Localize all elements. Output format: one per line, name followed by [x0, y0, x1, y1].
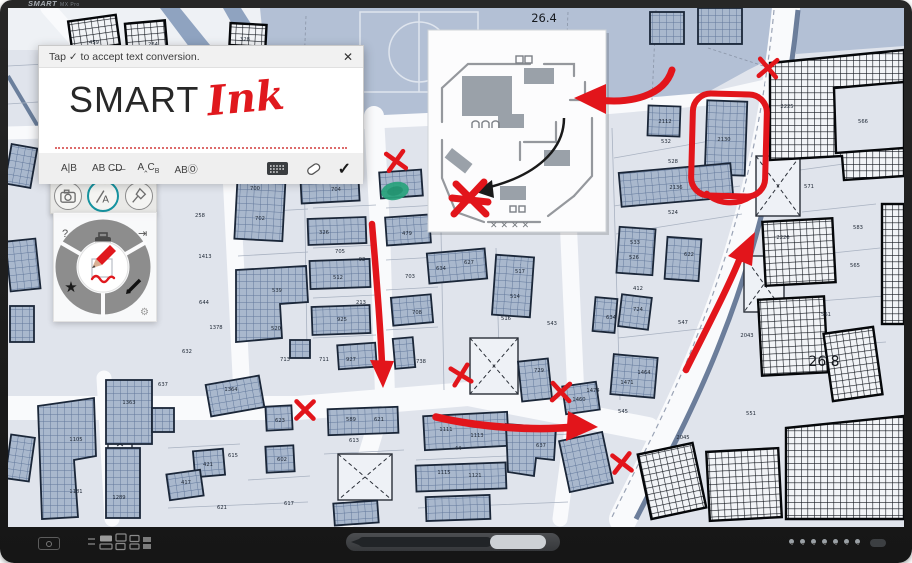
parcel-label: 92	[359, 257, 366, 263]
parcel-label: 547	[678, 320, 688, 326]
parcel-label: 724	[633, 307, 644, 313]
parcel-label: 561	[821, 312, 831, 318]
keyboard-icon	[267, 162, 289, 176]
parcel-label: 1113	[470, 433, 483, 439]
spotlight-icon	[130, 187, 148, 205]
parcel-label: 637	[536, 443, 546, 449]
parcel-label: 326	[319, 230, 329, 236]
parcel-label: 1105	[69, 437, 82, 443]
stylus[interactable]	[358, 537, 492, 547]
parcel-label: 526	[629, 255, 639, 261]
dialog-header-text: Tap ✓ to accept text conversion.	[49, 51, 200, 63]
camera-icon	[59, 188, 77, 204]
gesture-insert-word-button[interactable]: A‸CB	[138, 162, 160, 175]
parcel-label: 613	[349, 438, 359, 444]
parcel-label: 532	[661, 139, 671, 145]
parcel-label: 2112	[658, 119, 671, 125]
parcel-label: 703	[405, 274, 415, 280]
dialog-footer: A|B AB C̶D̶ A‸CB ABⓄ ✓	[39, 153, 363, 184]
parcel-label: 524	[668, 210, 679, 216]
keyboard-button[interactable]	[267, 162, 289, 176]
parcel-label: 622	[684, 252, 694, 258]
front-control-buttons[interactable]	[88, 532, 152, 557]
parcel-label: 738	[416, 359, 426, 365]
conversion-preview: SMART Ink	[39, 68, 363, 153]
parcel-label: 1363	[122, 400, 135, 406]
parcel-label: 623	[275, 418, 285, 424]
accept-check-button[interactable]: ✓	[338, 159, 351, 179]
parcel-label: 713	[280, 357, 290, 363]
parcel-label: 1111	[439, 427, 452, 433]
parcel-label: 729	[534, 368, 544, 374]
gesture-sub-label: B	[155, 168, 160, 175]
close-icon[interactable]: ✕	[343, 50, 353, 64]
parcel-label: 514	[510, 294, 521, 300]
parcel-label: 700	[250, 186, 260, 192]
parcel-label: 545	[618, 409, 628, 415]
parcel-label: 1289	[112, 495, 125, 501]
handwritten-ink-text: Ink	[205, 71, 286, 126]
parcel-label: 533	[630, 240, 640, 246]
smart-ink-conversion-dialog: Tap ✓ to accept text conversion. ✕ SMART…	[38, 45, 364, 180]
parcel-label: 551	[746, 411, 756, 417]
parcel-label: 634	[436, 266, 447, 272]
parcel-label: 711	[319, 357, 329, 363]
power-button[interactable]	[38, 537, 60, 550]
parcel-label: 1121	[468, 473, 481, 479]
settings-gear-button[interactable]: ⚙	[140, 307, 149, 318]
parcel-label: 520	[271, 326, 281, 332]
parcel-label: 2136	[669, 185, 682, 191]
inset-floor-plan-card: ✕✕✕✕	[428, 30, 609, 235]
parcel-label: 1460	[572, 397, 585, 403]
parcel-label: 328	[240, 37, 250, 43]
parcel-label: 1181	[69, 489, 82, 495]
eraser-button[interactable]	[304, 160, 323, 177]
parcel-label: 632	[182, 349, 192, 355]
parcel-label: 1364	[224, 387, 238, 393]
svg-text:A: A	[103, 194, 110, 205]
parcel-label: 702	[255, 216, 265, 222]
favorites-star-segment[interactable]: ★	[64, 279, 77, 296]
parcel-label: 583	[853, 225, 863, 231]
parcel-label: 539	[272, 288, 282, 294]
elevation-label: 26.8	[808, 354, 839, 370]
parcel-label: 421	[203, 462, 213, 468]
parcel-label: 258	[195, 213, 205, 219]
touchscreen[interactable]: 4592643282581413644137863270070253952071…	[8, 8, 904, 527]
parcel-label: 708	[412, 310, 422, 316]
inset-xxxx-marks: ✕✕✕✕	[490, 220, 532, 230]
brand-text: SMART	[28, 0, 57, 8]
parcel-label: 617	[284, 501, 294, 507]
screen-capture-button[interactable]	[54, 182, 82, 210]
bottom-bezel	[8, 527, 904, 563]
parcel-label: 927	[346, 357, 356, 363]
gesture-insert-space-button[interactable]: A|B	[61, 163, 77, 174]
elevation-label: 26.4	[531, 11, 557, 25]
parcel-label: 615	[228, 453, 238, 459]
parcel-label: 1378	[209, 325, 222, 331]
spotlight-button[interactable]	[125, 182, 153, 210]
parcel-label: 412	[633, 286, 643, 292]
convert-ink-to-text-button[interactable]: A	[87, 180, 119, 212]
parcel-label: 479	[402, 231, 412, 237]
parcel-label: 44	[455, 446, 462, 452]
bezel-side-button[interactable]	[870, 539, 886, 547]
active-pen-tool[interactable]	[78, 242, 128, 292]
parcel-label: 543	[547, 321, 557, 327]
conversion-underline	[55, 147, 347, 149]
parcel-label: 566	[858, 119, 868, 125]
parcel-label: 627	[464, 260, 474, 266]
parcel-label: 1115	[437, 470, 450, 476]
parcel-label: 1464	[637, 370, 651, 376]
converted-text: SMART	[69, 79, 199, 121]
smart-board-display: SMARTMX Pro	[0, 0, 912, 563]
smart-logo: SMARTMX Pro	[28, 0, 80, 8]
parcel-label: 1471	[620, 380, 633, 386]
parcel-label: 213	[356, 300, 366, 306]
parcel-label: 634	[606, 315, 617, 321]
pen-tray	[346, 533, 560, 551]
parcel-label: 704	[331, 187, 342, 193]
parcel-label: 528	[668, 159, 678, 165]
power-icon	[46, 541, 52, 547]
parcel-label: 637	[158, 382, 168, 388]
parcel-label: 1413	[198, 254, 211, 260]
text-conversion-icon: A	[94, 187, 112, 205]
parcel-label: 2130	[717, 137, 730, 143]
parcel-label: 644	[199, 300, 210, 306]
parcel-label: 417	[181, 480, 191, 486]
radial-pen-widget: ? ⇥ ⚙ ★	[53, 212, 157, 322]
gesture-select-button[interactable]: ABⓄ	[174, 161, 197, 176]
parcel-label: 602	[277, 457, 287, 463]
pen-tray-slot	[490, 535, 546, 549]
parcel-label: 517	[515, 269, 525, 275]
parcel-label: 621	[374, 417, 384, 423]
gesture-delete-button[interactable]: AB C̶D̶	[92, 163, 123, 174]
parcel-label: 512	[333, 275, 343, 281]
parcel-label: 1474	[586, 388, 600, 394]
parcel-label: 925	[337, 317, 347, 323]
parcel-label: 2043	[740, 333, 753, 339]
gesture-label: A‸C	[138, 162, 155, 173]
dialog-header: Tap ✓ to accept text conversion. ✕	[39, 46, 363, 68]
parcel-label: 2045	[676, 435, 689, 441]
parcel-label: 2225	[780, 104, 793, 110]
parcel-label: 705	[335, 249, 345, 255]
parcel-label: 565	[850, 263, 860, 269]
parcel-label: 589	[346, 417, 356, 423]
eraser-icon	[304, 160, 323, 177]
status-led-row	[789, 539, 860, 544]
parcel-label: 2226	[776, 235, 789, 241]
parcel-label: 571	[804, 184, 814, 190]
parcel-label: 516	[501, 316, 511, 322]
parcel-label: 621	[217, 505, 227, 511]
